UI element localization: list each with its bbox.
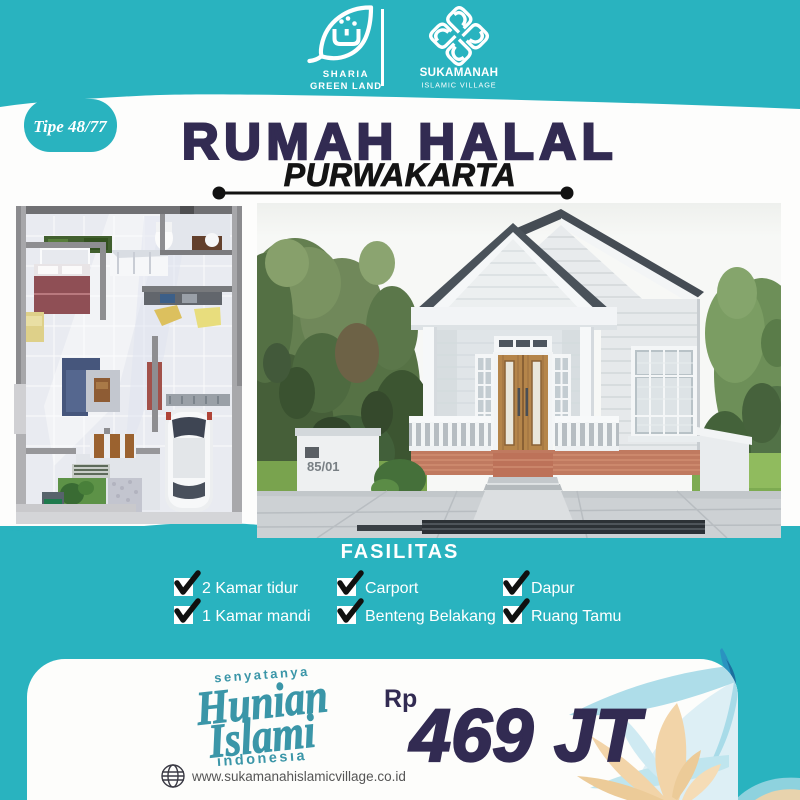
svg-text:SHARIA: SHARIA (323, 69, 369, 80)
svg-text:85/01: 85/01 (307, 459, 340, 474)
svg-text:ISLAMIC VILLAGE: ISLAMIC VILLAGE (421, 81, 496, 90)
svg-text:SUKAMANAH: SUKAMANAH (420, 66, 499, 79)
svg-text:GREEN LAND: GREEN LAND (310, 80, 382, 91)
